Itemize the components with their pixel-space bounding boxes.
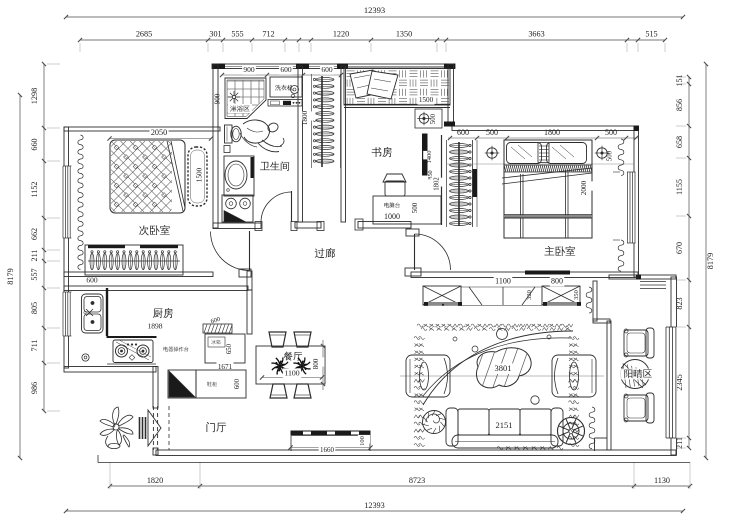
svg-text:12393: 12393 <box>364 5 385 15</box>
svg-text:8723: 8723 <box>409 476 425 485</box>
svg-text:856: 856 <box>675 99 684 111</box>
svg-text:1800: 1800 <box>544 128 560 137</box>
svg-text:2151: 2151 <box>496 420 513 430</box>
svg-text:600: 600 <box>321 65 333 74</box>
svg-text:1800: 1800 <box>301 110 309 125</box>
svg-text:600: 600 <box>234 378 241 389</box>
svg-text:500: 500 <box>430 113 437 124</box>
svg-text:500: 500 <box>411 202 419 213</box>
svg-text:301: 301 <box>209 30 221 39</box>
svg-text:600: 600 <box>457 128 469 137</box>
svg-text:1802: 1802 <box>434 177 441 191</box>
svg-text:1660: 1660 <box>320 446 335 454</box>
svg-text:900: 900 <box>243 65 255 74</box>
svg-text:2685: 2685 <box>136 30 152 39</box>
svg-text:662: 662 <box>30 228 39 240</box>
svg-text:557: 557 <box>30 268 39 280</box>
svg-text:1000: 1000 <box>384 212 400 221</box>
svg-text:1820: 1820 <box>147 476 163 485</box>
svg-text:658: 658 <box>675 136 684 148</box>
svg-text:1400: 1400 <box>426 151 433 164</box>
svg-text:1152: 1152 <box>30 181 39 197</box>
svg-text:100: 100 <box>359 436 366 446</box>
svg-text:320: 320 <box>526 290 533 300</box>
svg-text:2050: 2050 <box>151 128 167 137</box>
svg-text:670: 670 <box>675 242 684 254</box>
svg-text:1100: 1100 <box>495 277 511 286</box>
svg-text:1100: 1100 <box>284 369 299 378</box>
svg-text:3801: 3801 <box>495 363 512 373</box>
svg-text:900: 900 <box>214 93 222 104</box>
svg-text:8179: 8179 <box>6 268 15 284</box>
svg-text:1500: 1500 <box>419 96 434 104</box>
svg-text:12393: 12393 <box>364 501 384 510</box>
svg-text:2000: 2000 <box>580 180 588 195</box>
svg-text:3663: 3663 <box>528 30 544 39</box>
svg-text:1500: 1500 <box>196 167 204 182</box>
svg-text:600: 600 <box>280 65 292 74</box>
svg-text:660: 660 <box>30 138 39 150</box>
svg-text:986: 986 <box>30 382 39 394</box>
svg-text:650: 650 <box>226 343 233 354</box>
svg-text:1898: 1898 <box>148 322 163 331</box>
svg-text:350: 350 <box>573 290 580 300</box>
svg-text:500: 500 <box>486 128 498 137</box>
svg-text:1155: 1155 <box>675 179 684 195</box>
svg-text:800: 800 <box>551 277 563 286</box>
svg-text:500: 500 <box>607 150 614 161</box>
svg-text:515: 515 <box>645 30 657 39</box>
svg-text:151: 151 <box>675 74 684 86</box>
svg-text:555: 555 <box>231 30 243 39</box>
svg-text:805: 805 <box>30 302 39 314</box>
svg-text:211: 211 <box>30 250 39 262</box>
svg-text:500: 500 <box>605 128 617 137</box>
svg-text:1298: 1298 <box>30 88 39 104</box>
svg-text:711: 711 <box>30 340 39 352</box>
svg-text:1220: 1220 <box>333 30 349 39</box>
svg-text:600: 600 <box>86 276 98 285</box>
svg-text:800: 800 <box>312 358 320 369</box>
svg-text:8179: 8179 <box>706 253 715 269</box>
svg-text:1350: 1350 <box>396 30 412 39</box>
svg-text:712: 712 <box>262 30 274 39</box>
svg-text:1130: 1130 <box>654 476 670 485</box>
